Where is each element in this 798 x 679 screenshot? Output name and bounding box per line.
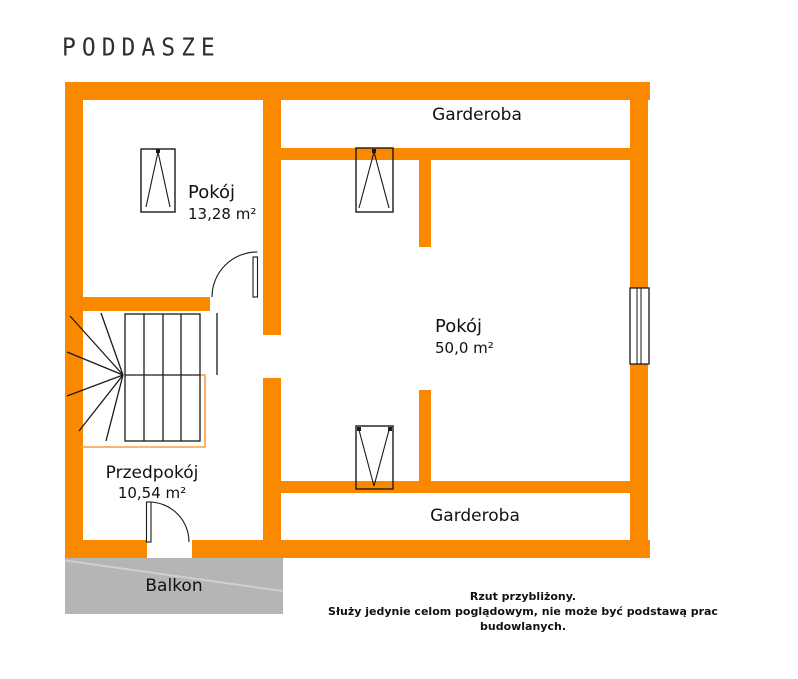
balcony-area: Balkon [65, 558, 283, 614]
room-label-pokoj1: Pokój 13,28 m² [188, 182, 256, 223]
wall-exterior-left [65, 82, 83, 558]
wall-stub-lower [419, 390, 431, 481]
room-name-pokoj2: Pokój [435, 316, 494, 339]
wall-garderoba-top-divider [281, 148, 630, 160]
wall-interior-vertical-lower [263, 378, 281, 558]
room-label-przedpokoj: Przedpokój 10,54 m² [92, 463, 212, 503]
room-area-przedpokoj: 10,54 m² [92, 484, 212, 503]
room-area-pokoj1: 13,28 m² [188, 205, 256, 224]
room-label-garderoba-top: Garderoba [367, 105, 587, 125]
wall-stub-upper [419, 160, 431, 247]
wall-exterior-bottom-left [65, 540, 147, 558]
wall-room1-przedpokoj-divider [65, 297, 210, 311]
room-name-przedpokoj: Przedpokój [92, 463, 212, 484]
wall-exterior-top [65, 82, 650, 100]
disclaimer-line2: Służy jedynie celom poglądowym, nie może… [290, 604, 756, 634]
room-area-pokoj2: 50,0 m² [435, 339, 494, 358]
floor-plan: PODDASZE Balkon [0, 0, 798, 679]
room-label-balkon: Balkon [145, 576, 202, 596]
room-name-pokoj1: Pokój [188, 182, 256, 205]
door-balcony [147, 502, 190, 542]
disclaimer-line1: Rzut przybliżony. [290, 589, 756, 604]
wall-garderoba-bottom-divider [281, 481, 630, 493]
room-label-garderoba-bottom: Garderoba [365, 506, 585, 526]
roof-window-3 [356, 426, 393, 489]
disclaimer: Rzut przybliżony. Służy jedynie celom po… [290, 589, 756, 634]
staircase [67, 313, 217, 441]
roof-window-1 [141, 149, 175, 212]
wall-window-right [630, 288, 649, 364]
wall-interior-vertical-upper [263, 82, 281, 335]
wall-exterior-bottom-right [192, 540, 650, 558]
room-label-pokoj2: Pokój 50,0 m² [435, 316, 494, 357]
stairwell-outline [80, 375, 205, 447]
wall-exterior-right-lower [630, 364, 648, 558]
door-room1 [212, 252, 258, 297]
wall-exterior-right-upper [630, 82, 648, 288]
page-title: PODDASZE [62, 34, 221, 62]
